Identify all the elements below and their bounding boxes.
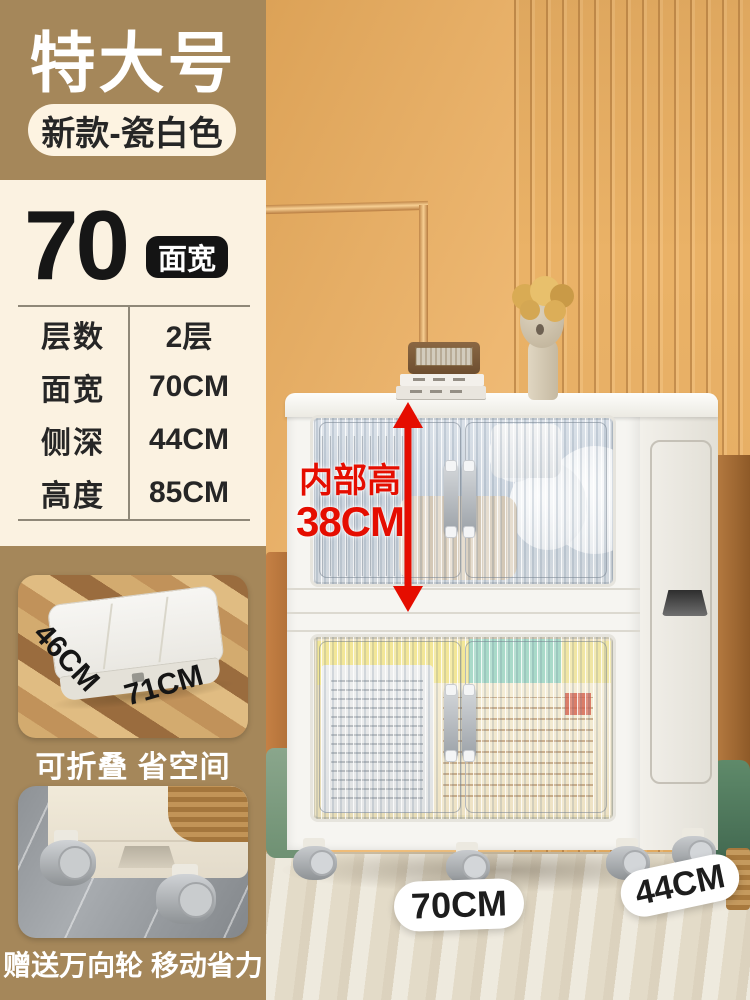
spec-row-width: 面宽 70CM bbox=[18, 360, 250, 413]
cabinet-corner-notch bbox=[118, 846, 176, 868]
tier2-door-handles[interactable] bbox=[444, 686, 476, 760]
folded-photo-card: 46CM 71CM bbox=[18, 575, 248, 738]
spec-label: 高度 bbox=[18, 471, 128, 515]
spec-row-layers: 层数 2层 bbox=[18, 307, 250, 360]
wicker-content bbox=[168, 786, 248, 842]
tier-seam-1 bbox=[287, 588, 640, 590]
sidebar-photos: 46CM 71CM 可折叠 省空间 赠送万向轮 移动省力 bbox=[0, 546, 266, 1000]
vintage-radio bbox=[408, 342, 480, 374]
wheels-photo-card bbox=[18, 786, 248, 938]
tier-seam-3 bbox=[287, 630, 640, 632]
size-tag: 特大号 bbox=[0, 10, 266, 106]
front-width-pill: 70CM bbox=[393, 878, 525, 933]
radio-speaker-mesh bbox=[415, 347, 473, 366]
spec-value: 70CM bbox=[128, 370, 250, 404]
folded-caption: 可折叠 省空间 bbox=[0, 742, 266, 786]
gold-flower bbox=[520, 300, 540, 320]
book-bottom bbox=[396, 386, 486, 399]
height-arrow-icon bbox=[388, 402, 428, 612]
spec-label: 侧深 bbox=[18, 418, 128, 462]
variant-pill: 新款-瓷白色 bbox=[28, 104, 236, 156]
tier2-left-door[interactable] bbox=[319, 641, 461, 813]
cabinet-top-cap bbox=[285, 393, 718, 417]
spec-panel: 70 面宽 层数 2层 面宽 70CM 侧深 44CM 高度 85CM bbox=[0, 180, 266, 546]
product-banner: 内部高 38CM 70CM 44CM 特大号 新款-瓷白色 70 面宽 层数 2… bbox=[0, 0, 750, 1000]
tier2-right-door[interactable] bbox=[465, 641, 607, 813]
spec-row-depth: 侧深 44CM bbox=[18, 413, 250, 466]
wheels-caption: 赠送万向轮 移动省力 bbox=[0, 944, 266, 984]
spec-row-height: 高度 85CM bbox=[18, 466, 250, 519]
head-sculpture-vase bbox=[512, 282, 572, 400]
cabinet-side-handle-cutout bbox=[662, 590, 708, 616]
spec-table: 层数 2层 面宽 70CM 侧深 44CM 高度 85CM bbox=[18, 305, 250, 521]
tier1-door-handles[interactable] bbox=[444, 462, 476, 536]
book-spine-text bbox=[413, 378, 467, 381]
width-unit-badge: 面宽 bbox=[146, 236, 228, 278]
tier1-right-door[interactable] bbox=[465, 422, 607, 578]
book-top bbox=[400, 374, 484, 386]
width-number: 70 bbox=[24, 196, 127, 294]
sidebar-header: 特大号 新款-瓷白色 bbox=[0, 0, 266, 180]
book-spine-text bbox=[410, 390, 468, 393]
gold-flower bbox=[544, 300, 566, 322]
spec-value: 85CM bbox=[128, 476, 250, 510]
vase-mouth bbox=[536, 324, 544, 335]
spec-value: 44CM bbox=[128, 423, 250, 457]
spec-label: 面宽 bbox=[18, 365, 128, 409]
tier-seam-2 bbox=[287, 612, 640, 614]
spec-value: 2层 bbox=[128, 312, 250, 356]
spec-label: 层数 bbox=[18, 312, 128, 356]
